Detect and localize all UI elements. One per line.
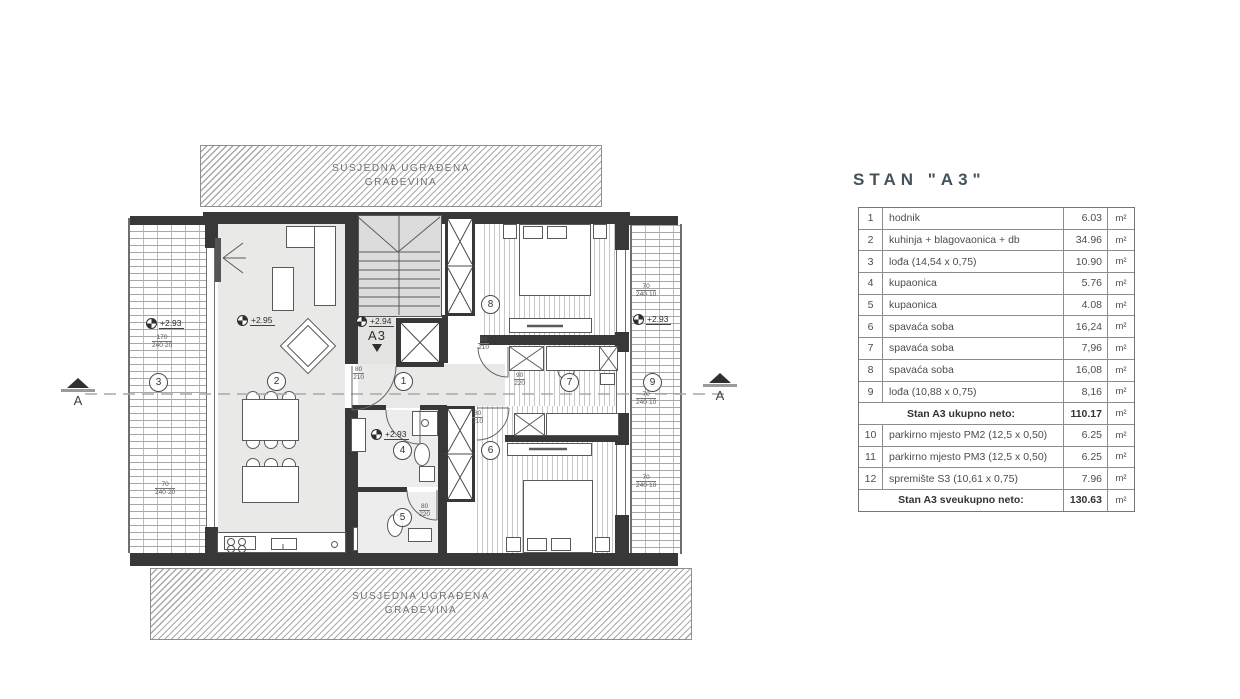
stool xyxy=(246,458,260,466)
entry-arrow-icon xyxy=(372,344,382,352)
level-benchmark-icon xyxy=(633,314,644,325)
table-row: 8 spavaća soba 16,08 m² xyxy=(859,360,1134,382)
table-row: 11 parkirno mjesto PM3 (12,5 x 0,50) 6.2… xyxy=(859,447,1134,469)
pillow xyxy=(523,226,543,239)
table-cell-unit: m² xyxy=(1108,490,1134,511)
section-marker-bar xyxy=(703,384,737,387)
window xyxy=(616,445,626,515)
nightstand xyxy=(593,224,607,239)
room-number-label: 6 xyxy=(481,441,500,460)
sofa xyxy=(314,226,336,306)
pillow xyxy=(547,226,567,239)
desk xyxy=(546,346,601,371)
table-cell-number: 11 xyxy=(859,447,883,468)
table-cell-value: 10.90 xyxy=(1064,251,1108,272)
stool xyxy=(282,458,296,466)
dimension-label: 80 210 xyxy=(353,366,364,382)
neighbor-building-bottom: SUSJEDNA UGRAĐENAGRAĐEVINA xyxy=(150,568,692,640)
nightstand xyxy=(503,224,517,239)
table-cell-name: parkirno mjesto PM3 (12,5 x 0,50) xyxy=(883,447,1064,468)
table-cell-name: kuhinja + blagovaonica + db xyxy=(883,230,1064,251)
section-marker-label: A xyxy=(700,388,740,403)
table-cell-value: 130.63 xyxy=(1064,490,1108,511)
nightstand xyxy=(595,537,610,552)
table-cell-name: spavaća soba xyxy=(883,360,1064,381)
table-row: 7 spavaća soba 7,96 m² xyxy=(859,338,1134,360)
room-number-label: 3 xyxy=(149,373,168,392)
tv-stand xyxy=(507,443,592,456)
room-number-label: 7 xyxy=(560,373,579,392)
wall xyxy=(130,216,205,225)
table-cell-number: 4 xyxy=(859,273,883,294)
table-cell-name: Stan A3 sveukupno neto: xyxy=(859,490,1064,511)
wardrobe xyxy=(514,413,545,436)
table-cell-value: 7.96 xyxy=(1064,468,1108,489)
table-cell-unit: m² xyxy=(1108,447,1134,468)
table-cell-value: 34.96 xyxy=(1064,230,1108,251)
table-cell-number: 6 xyxy=(859,316,883,337)
apartment-label: A3 xyxy=(356,328,398,343)
section-marker-bar xyxy=(61,389,95,392)
chair xyxy=(282,391,296,399)
washbasin xyxy=(351,418,366,452)
chair xyxy=(246,391,260,399)
table-cell-value: 16,08 xyxy=(1064,360,1108,381)
table-cell-unit: m² xyxy=(1108,360,1134,381)
level-marker: +2.93 xyxy=(146,318,184,329)
section-arrow-icon xyxy=(709,373,731,383)
pillow xyxy=(527,538,547,551)
wall xyxy=(480,335,615,345)
table-cell-value: 5.76 xyxy=(1064,273,1108,294)
wall xyxy=(615,515,629,555)
table-cell-number: 10 xyxy=(859,425,883,446)
table-cell-unit: m² xyxy=(1108,295,1134,316)
kitchen-island xyxy=(242,466,299,503)
level-marker: +2.93 xyxy=(371,429,409,440)
table-cell-value: 4.08 xyxy=(1064,295,1108,316)
level-marker: +2.95 xyxy=(237,315,275,326)
table-row: 3 lođa (14,54 x 0,75) 10.90 m² xyxy=(859,251,1134,273)
wall xyxy=(615,212,629,250)
wardrobe xyxy=(509,346,544,371)
shaft xyxy=(445,216,475,316)
table-row: 9 lođa (10,88 x 0,75) 8,16 m² xyxy=(859,382,1134,404)
table-cell-name: Stan A3 ukupno neto: xyxy=(859,403,1064,424)
table-row: 1 hodnik 6.03 m² xyxy=(859,208,1134,230)
table-cell-unit: m² xyxy=(1108,468,1134,489)
table-cell-name: spavaća soba xyxy=(883,338,1064,359)
table-cell-name: kupaonica xyxy=(883,273,1064,294)
table-cell-number: 12 xyxy=(859,468,883,489)
radiator xyxy=(353,527,358,551)
table-row: Stan A3 ukupno neto: 110.17 m² xyxy=(859,403,1134,425)
table-cell-unit: m² xyxy=(1108,316,1134,337)
dresser xyxy=(509,318,592,333)
room-number-label: 2 xyxy=(267,372,286,391)
table-cell-name: lođa (10,88 x 0,75) xyxy=(883,382,1064,403)
room-number-label: 8 xyxy=(481,295,500,314)
shelf xyxy=(546,413,619,436)
side-table xyxy=(600,373,615,385)
table-row: 12 spremište S3 (10,61 x 0,75) 7.96 m² xyxy=(859,468,1134,490)
wall xyxy=(505,435,615,442)
table-cell-value: 7,96 xyxy=(1064,338,1108,359)
shower xyxy=(412,411,438,436)
wall xyxy=(352,405,386,410)
stove-burner xyxy=(227,545,235,553)
room-number-label: 4 xyxy=(393,441,412,460)
hallway-floor xyxy=(358,364,506,408)
dimension-label: 80 210 xyxy=(478,336,489,352)
staircase xyxy=(358,215,442,317)
dimension-label: 80 210 xyxy=(472,410,483,426)
table-cell-number: 1 xyxy=(859,208,883,229)
section-marker-left: A xyxy=(58,378,98,408)
table-cell-unit: m² xyxy=(1108,382,1134,403)
table-cell-unit: m² xyxy=(1108,425,1134,446)
table-cell-value: 6.25 xyxy=(1064,447,1108,468)
table-cell-number: 7 xyxy=(859,338,883,359)
stove-burner xyxy=(238,545,246,553)
table-cell-unit: m² xyxy=(1108,338,1134,359)
table-row: 10 parkirno mjesto PM2 (12,5 x 0,50) 6.2… xyxy=(859,425,1134,447)
neighbor-building-top-label: SUSJEDNA UGRAĐENAGRAĐEVINA xyxy=(332,162,470,190)
table-row: 2 kuhinja + blagovaonica + db 34.96 m² xyxy=(859,230,1134,252)
elevator xyxy=(396,318,444,367)
wall xyxy=(420,405,438,410)
table-row: 4 kupaonica 5.76 m² xyxy=(859,273,1134,295)
level-benchmark-icon xyxy=(146,318,157,329)
floor-plan-page: SUSJEDNA UGRAĐENAGRAĐEVINA SUSJEDNA UGRA… xyxy=(0,0,1240,699)
table-cell-number: 5 xyxy=(859,295,883,316)
room-number-label: 5 xyxy=(393,508,412,527)
level-benchmark-icon xyxy=(371,429,382,440)
section-arrow-icon xyxy=(67,378,89,388)
entry-level-marker: +2.94 xyxy=(356,316,398,327)
dimension-label: 70 240·10 xyxy=(636,283,656,299)
pillow xyxy=(551,538,571,551)
page-title: STAN "A3" xyxy=(853,170,986,190)
tv-wall-unit xyxy=(215,238,221,282)
table-cell-value: 8,16 xyxy=(1064,382,1108,403)
coffee-table xyxy=(272,267,294,311)
section-marker-label: A xyxy=(58,393,98,408)
area-table: 1 hodnik 6.03 m² 2 kuhinja + blagovaonic… xyxy=(858,207,1135,512)
dimension-label: 170 240·20 xyxy=(152,334,172,350)
apartment-entry-marker: +2.94 A3 xyxy=(356,316,398,352)
table-cell-name: spavaća soba xyxy=(883,316,1064,337)
table-cell-unit: m² xyxy=(1108,208,1134,229)
room-number-label: 9 xyxy=(643,373,662,392)
table-cell-unit: m² xyxy=(1108,230,1134,251)
dimension-label: 90 220 xyxy=(514,372,525,388)
dimension-label: 70 240·20 xyxy=(155,481,175,497)
table-cell-name: kupaonica xyxy=(883,295,1064,316)
washbasin xyxy=(408,528,432,542)
table-cell-unit: m² xyxy=(1108,251,1134,272)
outlet xyxy=(331,541,338,548)
table-row: 5 kupaonica 4.08 m² xyxy=(859,295,1134,317)
table-cell-value: 6.25 xyxy=(1064,425,1108,446)
level-marker: +2.93 xyxy=(633,314,671,325)
neighbor-building-top: SUSJEDNA UGRAĐENAGRAĐEVINA xyxy=(200,145,602,207)
table-cell-name: spremište S3 (10,61 x 0,75) xyxy=(883,468,1064,489)
section-marker-right: A xyxy=(700,373,740,403)
wall xyxy=(352,487,407,492)
level-benchmark-icon xyxy=(356,316,367,327)
nightstand xyxy=(506,537,521,552)
dining-table xyxy=(242,399,299,441)
neighbor-building-bottom-label: SUSJEDNA UGRAĐENAGRAĐEVINA xyxy=(352,590,490,618)
washing-machine xyxy=(419,466,435,482)
chair xyxy=(264,391,278,399)
kitchen-sink xyxy=(271,538,297,550)
window xyxy=(206,248,215,527)
window xyxy=(616,250,626,332)
stool xyxy=(264,458,278,466)
loggia3-floor xyxy=(128,218,210,553)
dimension-label: 70 240·10 xyxy=(636,474,656,490)
table-cell-number: 8 xyxy=(859,360,883,381)
level-benchmark-icon xyxy=(237,315,248,326)
shaft xyxy=(445,406,475,502)
dimension-label: 80 220 xyxy=(419,503,430,519)
table-cell-name: hodnik xyxy=(883,208,1064,229)
wall xyxy=(628,216,678,225)
table-cell-value: 16,24 xyxy=(1064,316,1108,337)
single-bed xyxy=(599,346,618,371)
table-cell-unit: m² xyxy=(1108,273,1134,294)
dimension-label: 70 240·10 xyxy=(636,391,656,407)
table-cell-value: 6.03 xyxy=(1064,208,1108,229)
room-number-label: 1 xyxy=(394,372,413,391)
table-cell-number: 2 xyxy=(859,230,883,251)
table-cell-number: 3 xyxy=(859,251,883,272)
table-cell-number: 9 xyxy=(859,382,883,403)
table-cell-name: lođa (14,54 x 0,75) xyxy=(883,251,1064,272)
toilet xyxy=(414,443,430,466)
table-row: 6 spavaća soba 16,24 m² xyxy=(859,316,1134,338)
table-cell-value: 110.17 xyxy=(1064,403,1108,424)
table-cell-unit: m² xyxy=(1108,403,1134,424)
table-row: Stan A3 sveukupno neto: 130.63 m² xyxy=(859,490,1134,511)
table-cell-name: parkirno mjesto PM2 (12,5 x 0,50) xyxy=(883,425,1064,446)
